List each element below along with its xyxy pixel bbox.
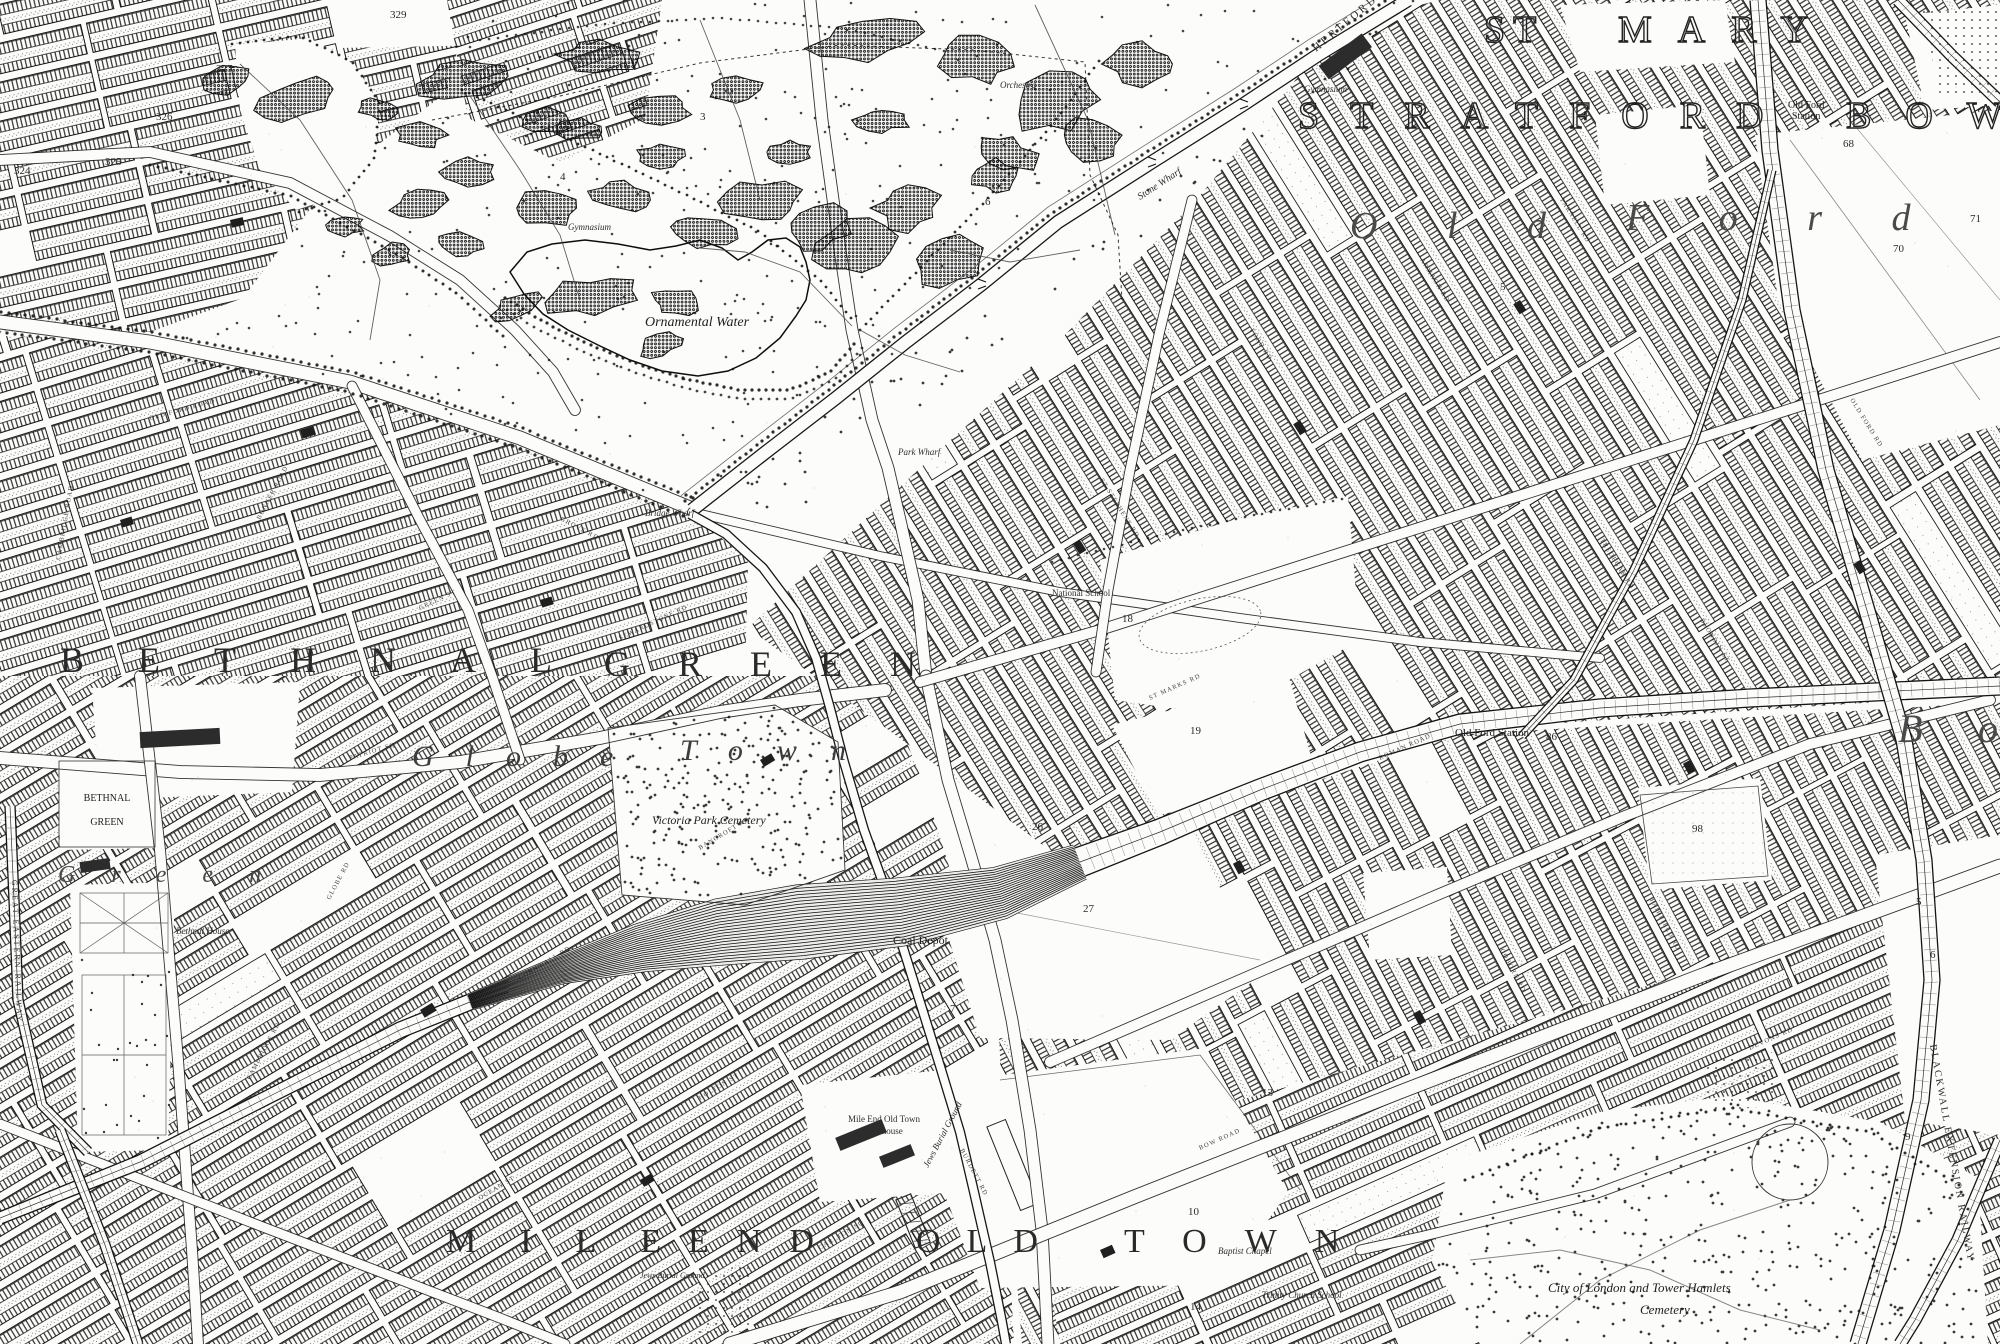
svg-text:BETHNAL: BETHNAL bbox=[60, 640, 606, 680]
svg-text:86: 86 bbox=[1546, 731, 1558, 743]
svg-text:GREEN: GREEN bbox=[604, 644, 964, 684]
svg-text:9: 9 bbox=[1905, 1131, 1911, 1143]
svg-text:Town: Town bbox=[680, 734, 880, 767]
svg-text:Bridge Wharf: Bridge Wharf bbox=[645, 508, 696, 518]
svg-text:F o r d: F o r d bbox=[1625, 197, 1941, 239]
svg-text:98: 98 bbox=[1692, 823, 1704, 835]
svg-text:Gymnasium: Gymnasium bbox=[568, 222, 611, 232]
svg-text:Trinity Church School: Trinity Church School bbox=[1262, 1290, 1342, 1300]
svg-text:GREEN: GREEN bbox=[90, 817, 123, 828]
svg-text:BOW: BOW bbox=[1846, 95, 2000, 137]
svg-text:13: 13 bbox=[1262, 1087, 1274, 1099]
svg-text:ST: ST bbox=[1484, 9, 1544, 51]
svg-text:Orchestra: Orchestra bbox=[1000, 80, 1037, 90]
svg-text:B: B bbox=[1898, 706, 1922, 751]
svg-text:Mile End Old Town: Mile End Old Town bbox=[848, 1114, 920, 1124]
svg-text:329: 329 bbox=[390, 9, 407, 21]
svg-text:71: 71 bbox=[1970, 213, 1981, 225]
svg-text:68: 68 bbox=[1843, 138, 1855, 150]
svg-text:19: 19 bbox=[1190, 725, 1202, 737]
svg-text:BETHNAL: BETHNAL bbox=[84, 793, 131, 804]
svg-text:National School: National School bbox=[1052, 588, 1111, 598]
svg-text:Green: Green bbox=[58, 862, 297, 888]
svg-text:5: 5 bbox=[1916, 896, 1922, 908]
svg-text:Cemetery: Cemetery bbox=[1640, 1302, 1690, 1317]
svg-text:Gymnasium: Gymnasium bbox=[1304, 84, 1347, 94]
svg-text:6: 6 bbox=[1930, 949, 1936, 961]
svg-text:7: 7 bbox=[950, 1003, 956, 1015]
svg-text:326: 326 bbox=[156, 111, 173, 123]
svg-text:324: 324 bbox=[14, 165, 31, 177]
svg-text:Coal Depôt: Coal Depôt bbox=[893, 933, 949, 947]
svg-text:O l d: O l d bbox=[1350, 205, 1576, 247]
svg-text:Baptist Chapel: Baptist Chapel bbox=[1218, 1246, 1272, 1256]
svg-text:City of London and Tower Hamle: City of London and Tower Hamlets bbox=[1548, 1280, 1731, 1295]
svg-text:END: END bbox=[688, 1223, 842, 1260]
svg-text:Old Ford: Old Ford bbox=[1788, 100, 1824, 111]
svg-text:Old Ford Station: Old Ford Station bbox=[1455, 727, 1529, 739]
svg-text:Globe: Globe bbox=[412, 740, 645, 773]
svg-text:14: 14 bbox=[1190, 1301, 1202, 1313]
svg-text:327: 327 bbox=[216, 63, 233, 75]
svg-text:Ornamental Water: Ornamental Water bbox=[645, 315, 750, 330]
svg-text:26: 26 bbox=[1032, 821, 1044, 833]
svg-text:Workhouse: Workhouse bbox=[862, 1126, 903, 1136]
svg-text:3: 3 bbox=[700, 111, 706, 123]
svg-text:Station: Station bbox=[1792, 111, 1820, 122]
svg-text:10: 10 bbox=[1188, 1206, 1200, 1218]
svg-text:27: 27 bbox=[1083, 903, 1095, 915]
svg-text:STRATFORD: STRATFORD bbox=[1298, 95, 1795, 137]
svg-text:OLD: OLD bbox=[916, 1223, 1064, 1260]
svg-text:Bethnal House: Bethnal House bbox=[176, 926, 229, 936]
svg-text:70: 70 bbox=[1893, 243, 1905, 255]
svg-text:o: o bbox=[1978, 706, 1998, 751]
svg-text:5: 5 bbox=[1500, 281, 1506, 293]
svg-text:Jews Burial Ground: Jews Burial Ground bbox=[640, 1271, 706, 1280]
svg-text:6: 6 bbox=[985, 196, 991, 208]
svg-text:Park Wharf: Park Wharf bbox=[897, 447, 942, 457]
svg-text:MILE: MILE bbox=[446, 1223, 705, 1260]
svg-text:4: 4 bbox=[560, 171, 566, 183]
svg-text:18: 18 bbox=[1122, 613, 1134, 625]
svg-text:325: 325 bbox=[105, 156, 122, 168]
svg-text:MARY: MARY bbox=[1618, 9, 1834, 51]
